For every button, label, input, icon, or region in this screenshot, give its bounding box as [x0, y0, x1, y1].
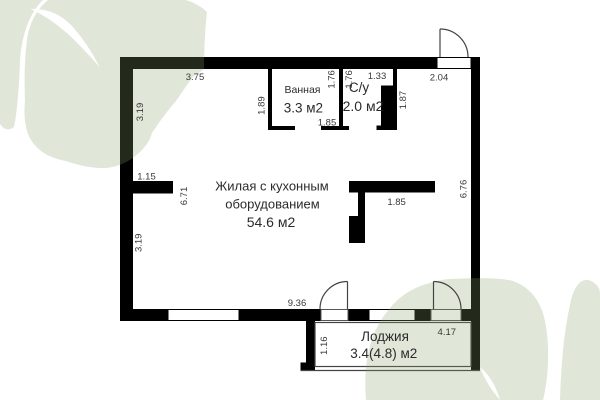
svg-text:1.85: 1.85	[318, 118, 337, 129]
svg-text:3.4(4.8) м2: 3.4(4.8) м2	[350, 346, 417, 361]
svg-text:1.76: 1.76	[344, 70, 355, 89]
svg-text:Жилая с кухонным: Жилая с кухонным	[215, 178, 328, 193]
svg-text:2.04: 2.04	[430, 73, 449, 84]
svg-text:1.76: 1.76	[326, 70, 337, 89]
svg-text:9.36: 9.36	[288, 298, 307, 309]
svg-text:3.75: 3.75	[186, 72, 205, 83]
svg-text:6.76: 6.76	[459, 180, 470, 199]
svg-text:Ванная: Ванная	[285, 84, 321, 96]
svg-text:4.17: 4.17	[438, 327, 457, 338]
svg-text:3.19: 3.19	[135, 103, 146, 122]
svg-text:1.87: 1.87	[398, 91, 409, 110]
svg-text:54.6 м2: 54.6 м2	[247, 214, 296, 230]
svg-text:3.19: 3.19	[134, 234, 145, 253]
svg-text:Лоджия: Лоджия	[361, 329, 409, 344]
svg-text:оборудованием: оборудованием	[225, 197, 320, 212]
svg-text:6.71: 6.71	[179, 187, 190, 206]
svg-text:1.85: 1.85	[387, 197, 406, 208]
svg-text:1.16: 1.16	[319, 336, 330, 355]
svg-text:3.3 м2: 3.3 м2	[284, 101, 323, 116]
svg-text:1.89: 1.89	[256, 96, 267, 115]
svg-text:1.15: 1.15	[137, 172, 156, 183]
svg-text:1.33: 1.33	[368, 71, 387, 82]
svg-text:2.0 м2: 2.0 м2	[343, 98, 384, 114]
